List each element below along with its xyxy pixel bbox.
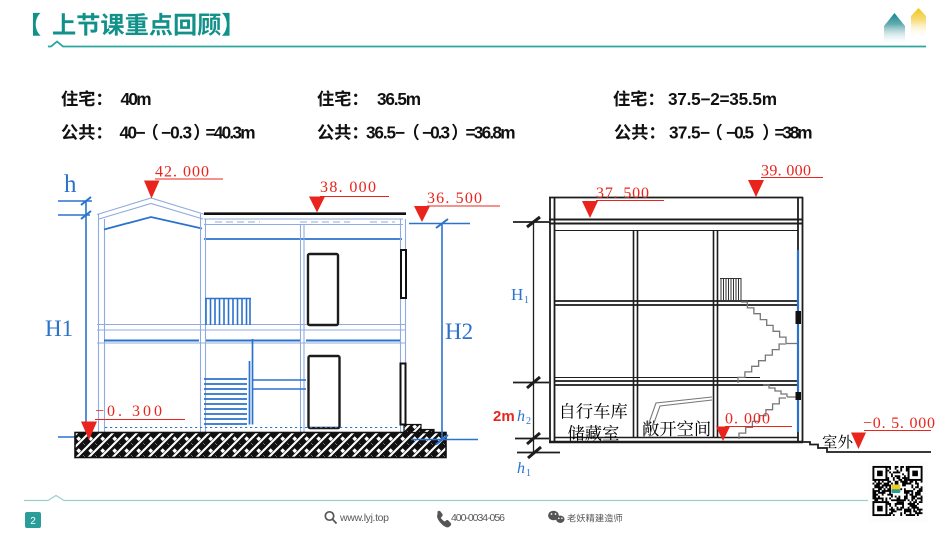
svg-text:38. 000: 38. 000 [320, 179, 376, 196]
svg-text:36.5m: 36.5m [377, 89, 421, 109]
svg-text:400-0034-056: 400-0034-056 [451, 512, 505, 524]
svg-text:H1: H1 [45, 316, 73, 341]
svg-text:42. 000: 42. 000 [155, 164, 209, 181]
svg-text:h: h [64, 171, 77, 198]
svg-text:37. 500: 37. 500 [596, 185, 649, 202]
svg-text:0. 000: 0. 000 [725, 411, 770, 428]
svg-text:36. 500: 36. 500 [427, 190, 482, 207]
svg-text:2: 2 [30, 516, 36, 527]
svg-text:−0.5: −0.5 [726, 123, 754, 143]
svg-text:=40.3m: =40.3m [206, 123, 256, 143]
svg-text:1: 1 [524, 295, 529, 306]
svg-text:39. 000: 39. 000 [761, 163, 811, 180]
svg-text:40m: 40m [121, 89, 152, 109]
svg-text:40−: 40− [120, 123, 146, 143]
svg-text:H2: H2 [445, 319, 473, 344]
svg-text:37.5−: 37.5− [669, 123, 710, 143]
svg-text:2m: 2m [493, 408, 515, 425]
svg-text:1: 1 [526, 468, 531, 479]
svg-text:36.5−: 36.5− [366, 123, 405, 143]
svg-text:www.lyj.top: www.lyj.top [339, 512, 389, 524]
svg-text:h: h [517, 460, 525, 477]
svg-text:=38m: =38m [775, 123, 813, 143]
svg-text:2: 2 [526, 416, 531, 427]
svg-text:−0.3: −0.3 [161, 123, 192, 143]
svg-text:−0. 5. 000: −0. 5. 000 [863, 415, 935, 432]
svg-text:=36.8m: =36.8m [466, 123, 516, 143]
svg-text:−0.3: −0.3 [422, 123, 450, 143]
svg-text:h: h [517, 408, 525, 425]
svg-text:H: H [511, 285, 523, 304]
svg-text:37.5−2=35.5m: 37.5−2=35.5m [668, 89, 777, 109]
